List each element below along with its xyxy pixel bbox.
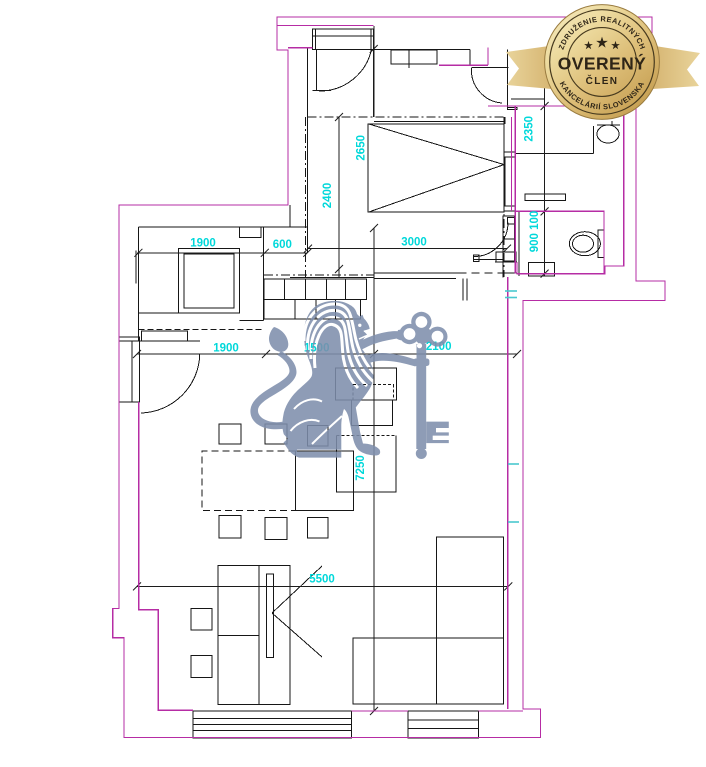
svg-text:600: 600 — [273, 239, 292, 251]
svg-text:1900: 1900 — [190, 238, 216, 250]
svg-text:3000: 3000 — [401, 237, 427, 249]
svg-text:5500: 5500 — [309, 574, 335, 586]
svg-text:2350: 2350 — [524, 116, 536, 142]
svg-text:OVERENÝ: OVERENÝ — [558, 53, 646, 74]
svg-text:ČLEN: ČLEN — [586, 74, 619, 87]
svg-text:2400: 2400 — [322, 183, 334, 209]
svg-text:900 100: 900 100 — [529, 211, 541, 253]
svg-text:7250: 7250 — [355, 455, 367, 481]
svg-text:2650: 2650 — [356, 135, 368, 161]
svg-text:1900: 1900 — [213, 343, 239, 355]
